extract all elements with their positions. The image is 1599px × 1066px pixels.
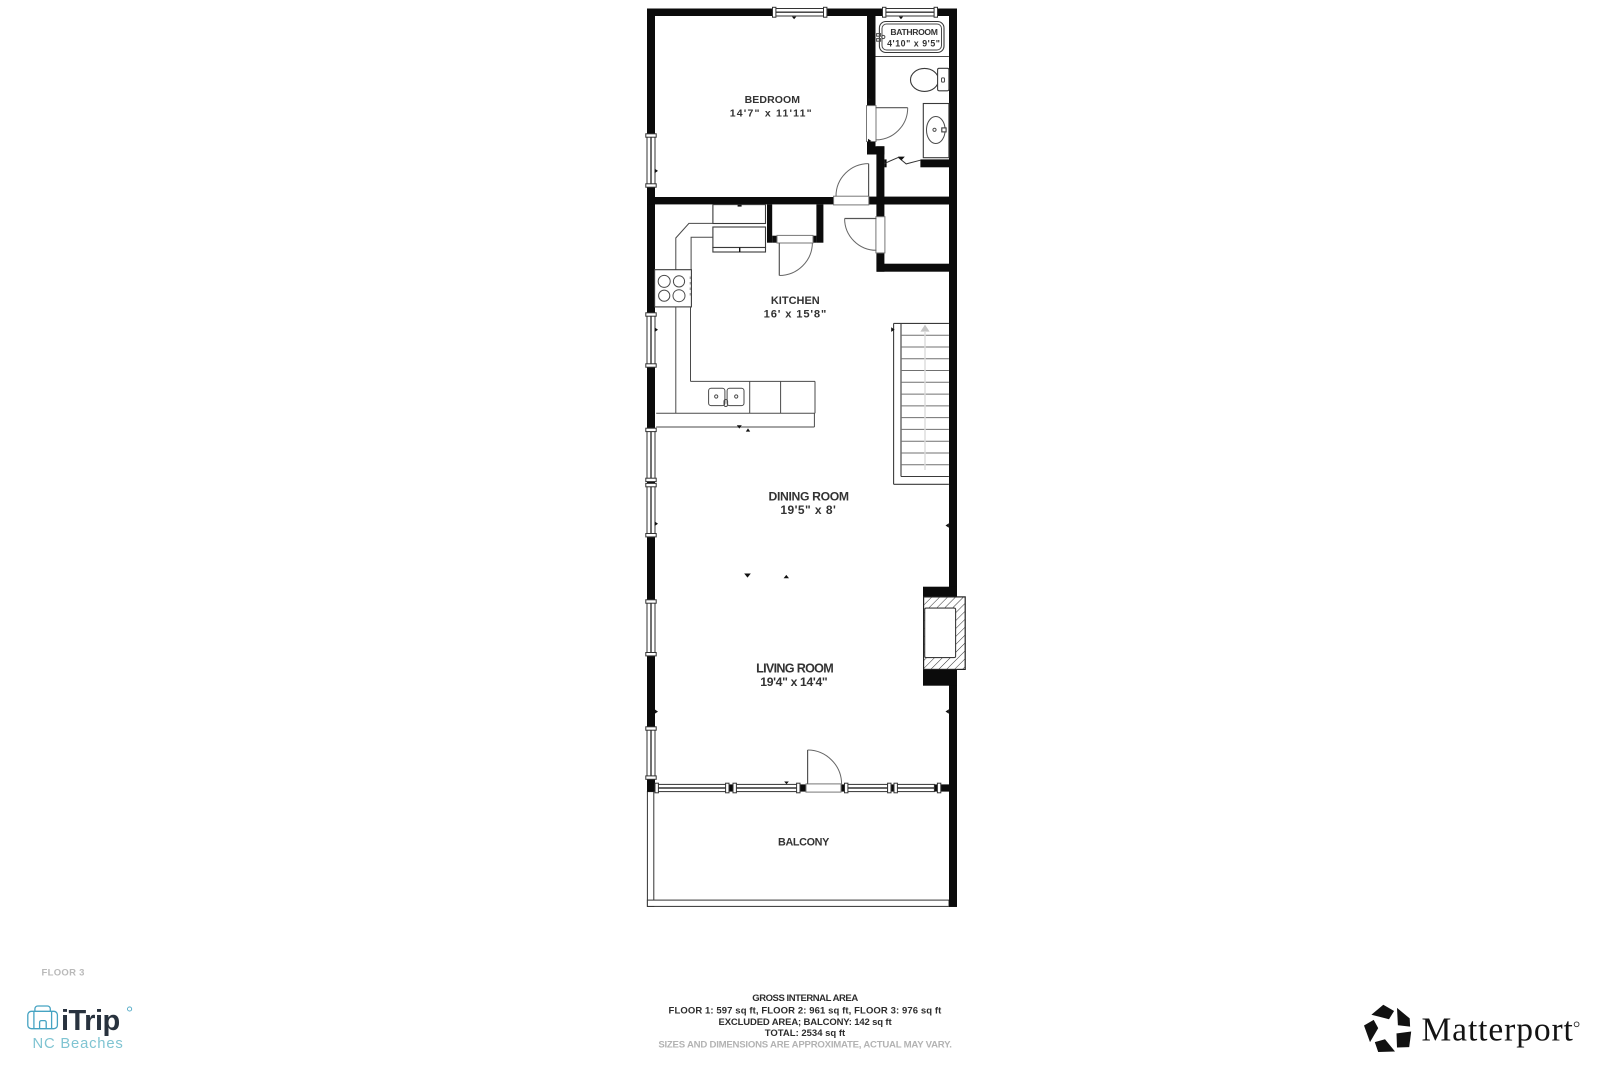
svg-text:Matterport: Matterport bbox=[1422, 1012, 1574, 1049]
svg-text:EXCLUDED AREA; BALCONY: 142 sq: EXCLUDED AREA; BALCONY: 142 sq ft bbox=[719, 1017, 893, 1028]
svg-text:BEDROOM: BEDROOM bbox=[745, 94, 801, 106]
svg-text:TOTAL: 2534 sq ft: TOTAL: 2534 sq ft bbox=[765, 1028, 846, 1039]
svg-text:16' x 15'8": 16' x 15'8" bbox=[764, 308, 828, 320]
svg-text:GROSS INTERNAL AREA: GROSS INTERNAL AREA bbox=[752, 993, 858, 1004]
svg-text:4'10" x 9'5": 4'10" x 9'5" bbox=[887, 38, 940, 48]
svg-text:19'5" x 8': 19'5" x 8' bbox=[780, 503, 836, 517]
svg-text:LIVING ROOM: LIVING ROOM bbox=[756, 661, 833, 675]
svg-text:SIZES AND DIMENSIONS ARE APPRO: SIZES AND DIMENSIONS ARE APPROXIMATE, AC… bbox=[658, 1039, 951, 1050]
svg-text:iTrip: iTrip bbox=[61, 1005, 120, 1037]
svg-text:BALCONY: BALCONY bbox=[778, 836, 830, 848]
svg-text:DINING ROOM: DINING ROOM bbox=[769, 489, 849, 503]
svg-text:KITCHEN: KITCHEN bbox=[771, 295, 820, 307]
svg-text:FLOOR 3: FLOOR 3 bbox=[42, 968, 85, 979]
svg-text:19'4" x 14'4": 19'4" x 14'4" bbox=[760, 675, 827, 689]
svg-text:NC Beaches: NC Beaches bbox=[33, 1036, 124, 1052]
svg-text:14'7" x 11'11": 14'7" x 11'11" bbox=[730, 108, 813, 120]
svg-text:BATHROOM: BATHROOM bbox=[890, 27, 937, 37]
svg-text:FLOOR 1: 597 sq ft, FLOOR 2: 9: FLOOR 1: 597 sq ft, FLOOR 2: 961 sq ft, … bbox=[669, 1006, 943, 1017]
